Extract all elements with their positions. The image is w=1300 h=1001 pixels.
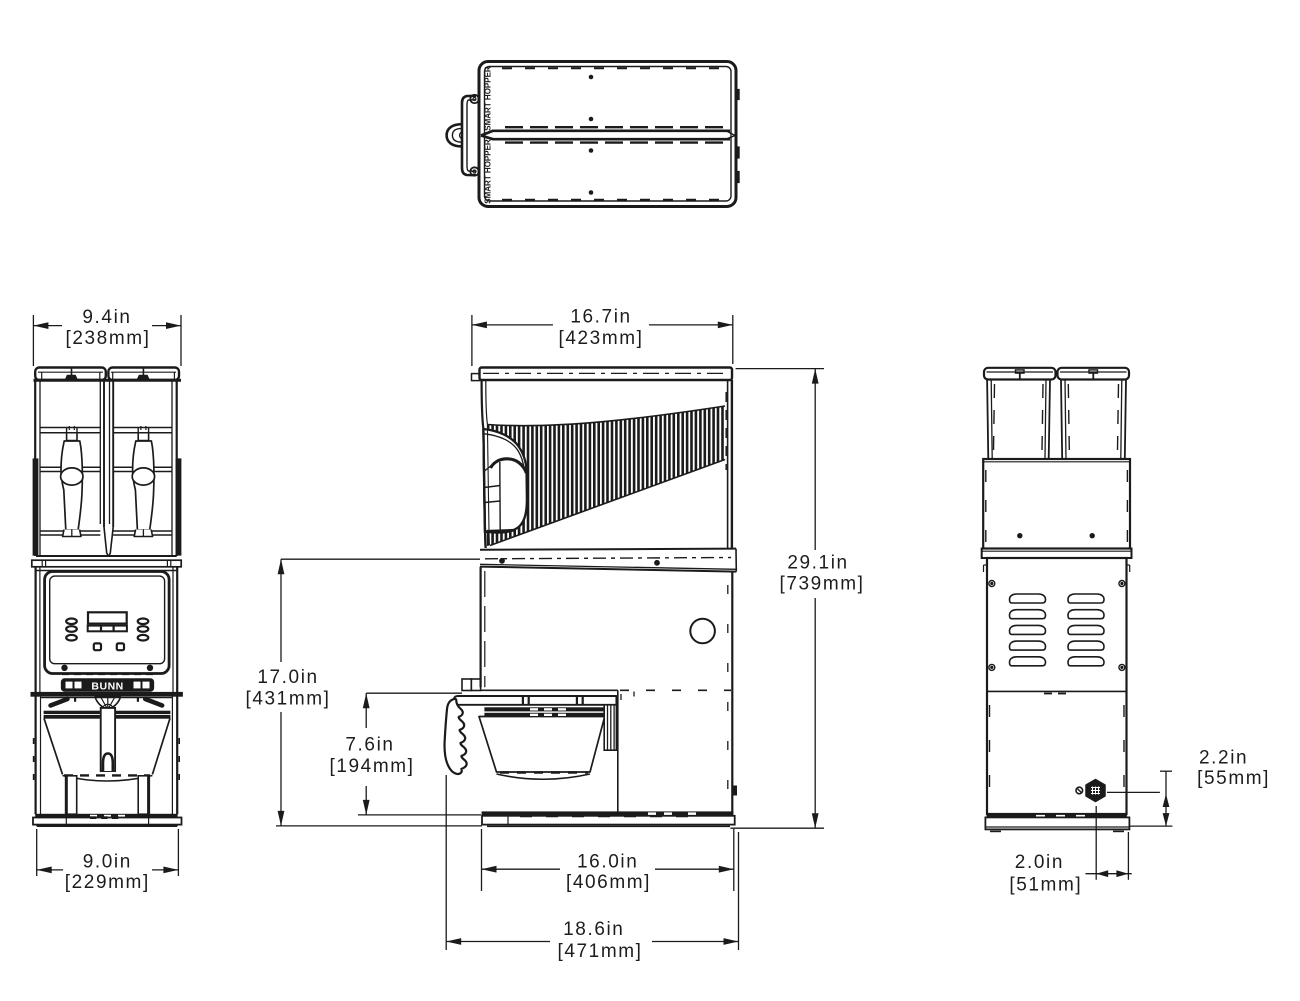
svg-text:SMART HOPPER: SMART HOPPER <box>484 139 493 204</box>
svg-text:17.0in: 17.0in <box>257 667 318 688</box>
svg-text:7.6in: 7.6in <box>345 735 394 756</box>
svg-text:[194mm]: [194mm] <box>329 756 414 777</box>
svg-text:2.2in: 2.2in <box>1199 748 1248 769</box>
svg-text:[51mm]: [51mm] <box>1009 875 1082 896</box>
svg-text:9.0in: 9.0in <box>83 852 132 873</box>
svg-text:SMART HOPPER: SMART HOPPER <box>484 66 493 131</box>
svg-text:[739mm]: [739mm] <box>779 574 864 595</box>
svg-text:[431mm]: [431mm] <box>245 689 330 710</box>
svg-text:[55mm]: [55mm] <box>1197 768 1270 789</box>
svg-text:9.4in: 9.4in <box>82 307 131 328</box>
svg-text:16.0in: 16.0in <box>577 852 638 873</box>
svg-text:[423mm]: [423mm] <box>558 328 643 349</box>
svg-text:[471mm]: [471mm] <box>557 941 642 962</box>
svg-text:2.0in: 2.0in <box>1015 852 1064 873</box>
svg-text:[406mm]: [406mm] <box>566 872 651 893</box>
svg-text:18.6in: 18.6in <box>563 919 624 940</box>
svg-text:BUNN: BUNN <box>91 680 123 692</box>
svg-text:16.7in: 16.7in <box>570 307 631 328</box>
svg-text:29.1in: 29.1in <box>787 553 848 574</box>
svg-text:[229mm]: [229mm] <box>65 872 150 893</box>
svg-text:[238mm]: [238mm] <box>65 328 150 349</box>
